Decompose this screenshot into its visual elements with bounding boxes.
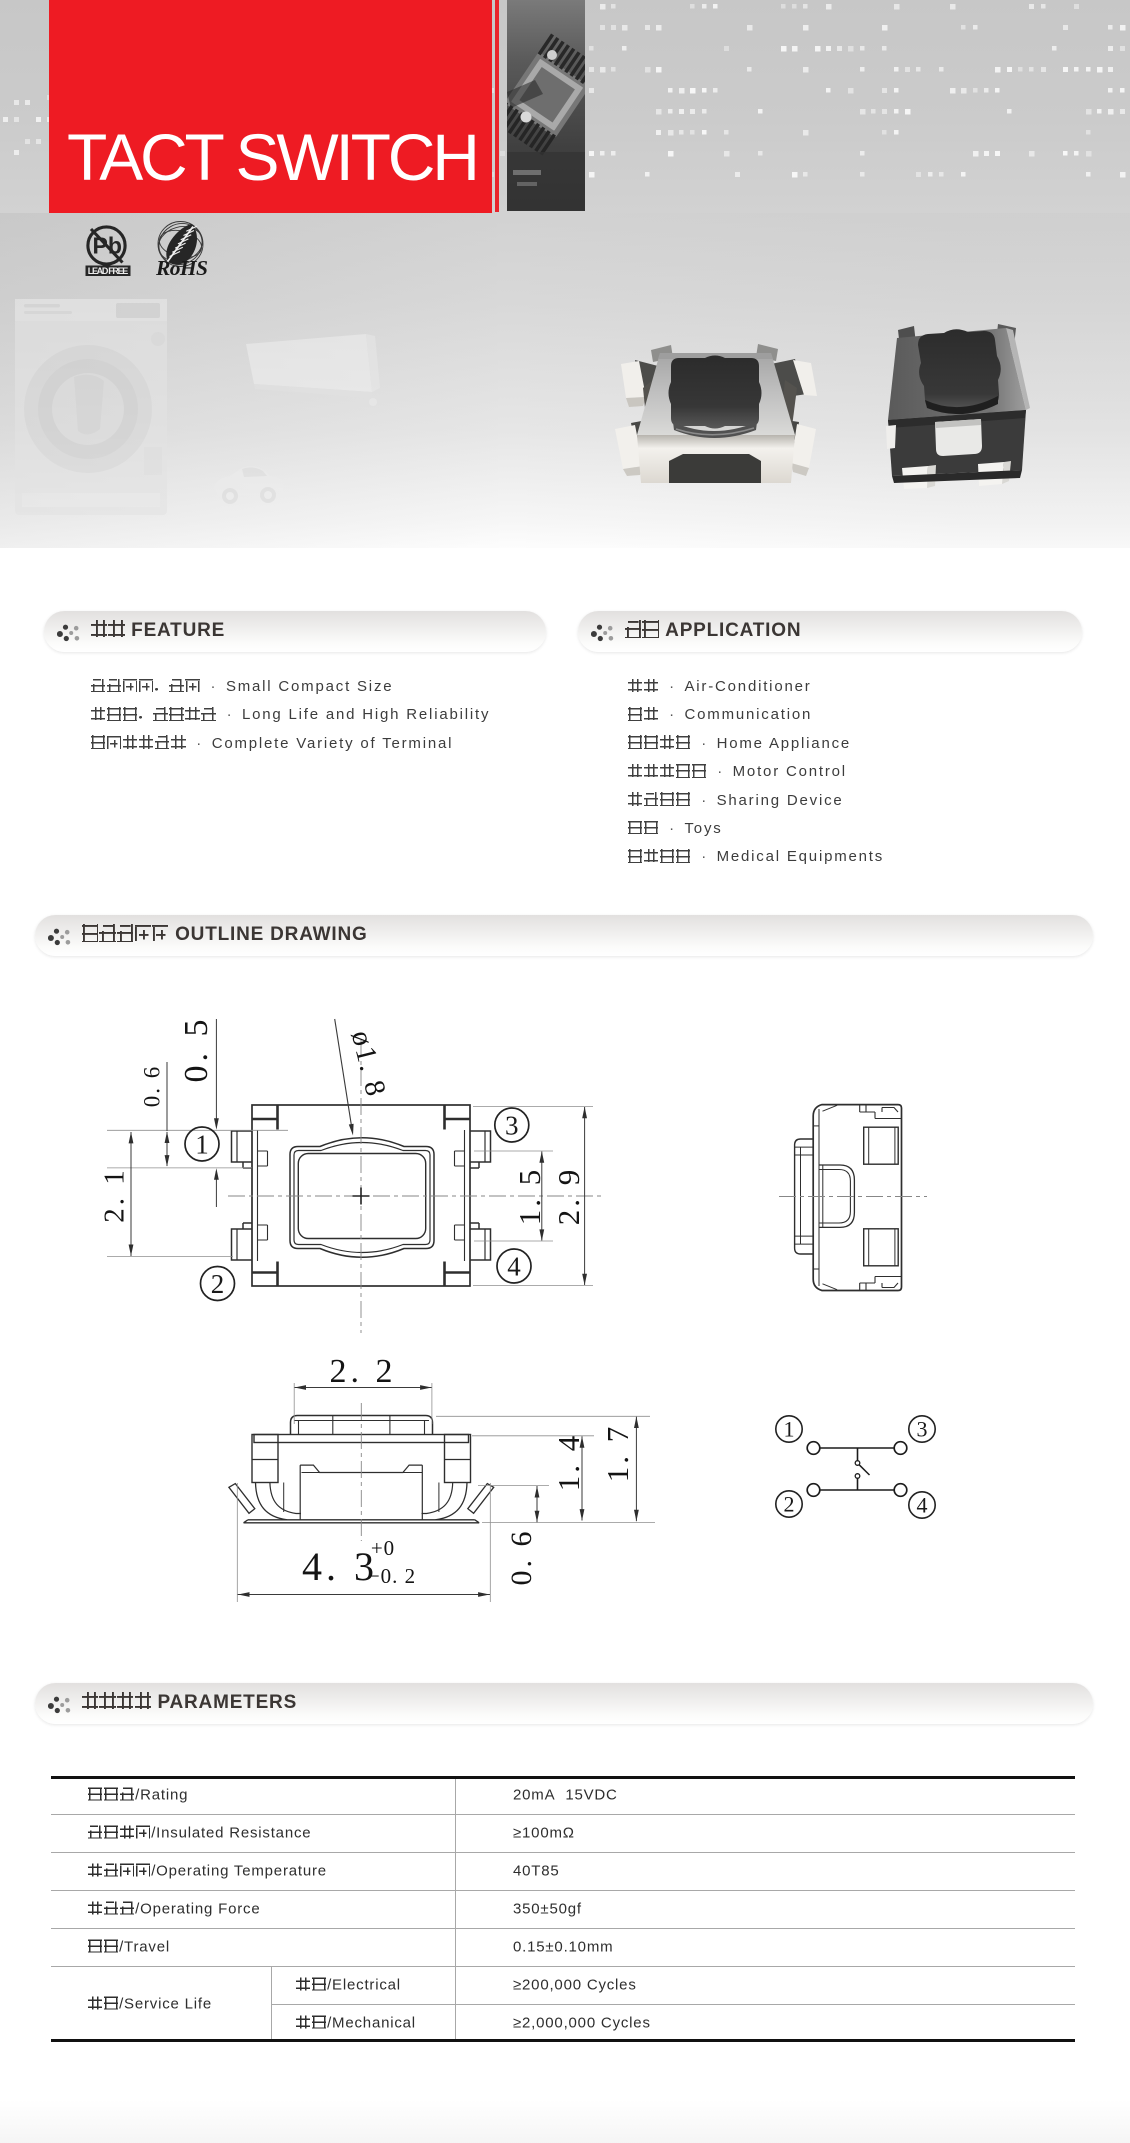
svg-text:ø1. 8: ø1. 8 xyxy=(345,1027,393,1101)
svg-text:−0. 2: −0. 2 xyxy=(368,1564,416,1588)
svg-text:2. 1: 2. 1 xyxy=(99,1167,131,1223)
svg-text:2: 2 xyxy=(784,1492,795,1517)
svg-text:1. 4: 1. 4 xyxy=(551,1433,586,1492)
svg-text:3: 3 xyxy=(917,1417,928,1442)
svg-text:+0: +0 xyxy=(371,1536,395,1560)
svg-text:0. 6: 0. 6 xyxy=(505,1529,538,1586)
svg-text:4. 3: 4. 3 xyxy=(302,1544,378,1589)
svg-text:1: 1 xyxy=(784,1417,795,1442)
svg-text:2. 9: 2. 9 xyxy=(551,1167,586,1226)
svg-text:1. 7: 1. 7 xyxy=(600,1424,635,1483)
svg-text:2: 2 xyxy=(211,1269,225,1299)
svg-text:0. 5: 0. 5 xyxy=(178,1016,215,1083)
svg-text:4: 4 xyxy=(917,1493,928,1518)
svg-text:4: 4 xyxy=(507,1251,521,1281)
svg-text:3: 3 xyxy=(505,1110,519,1140)
svg-text:2. 2: 2. 2 xyxy=(330,1353,397,1390)
svg-text:1. 5: 1. 5 xyxy=(512,1167,547,1226)
svg-text:1: 1 xyxy=(195,1129,209,1159)
svg-text:0. 6: 0. 6 xyxy=(140,1065,165,1108)
